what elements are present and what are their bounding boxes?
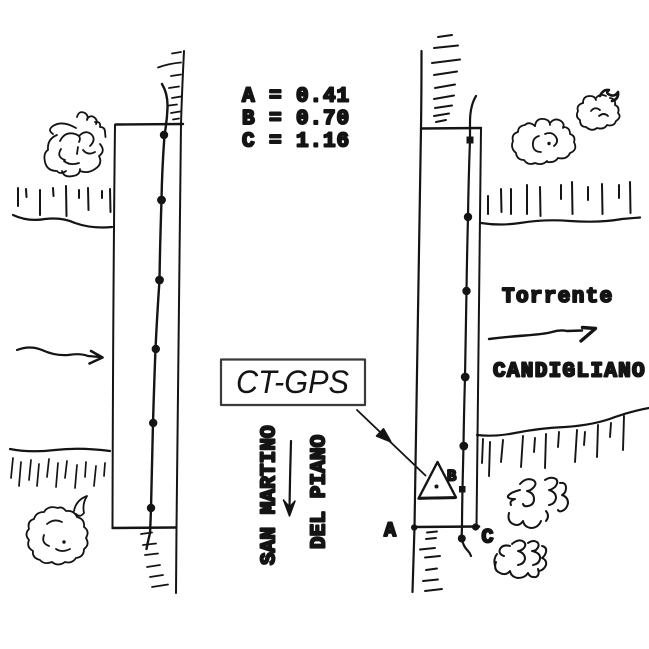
svg-text:A = 0.41: A = 0.41 xyxy=(242,86,350,109)
svg-text:B = 0.70: B = 0.70 xyxy=(242,108,350,131)
svg-text:C: C xyxy=(482,527,494,550)
svg-text:SAN MARTINO: SAN MARTINO xyxy=(259,425,282,565)
svg-text:CANDIGLIANO: CANDIGLIANO xyxy=(493,361,646,384)
svg-text:B: B xyxy=(447,468,456,486)
svg-text:C = 1.16: C = 1.16 xyxy=(242,131,350,154)
svg-text:CT-GPS: CT-GPS xyxy=(236,364,349,400)
svg-text:DEL PIANO: DEL PIANO xyxy=(309,435,332,549)
svg-text:A: A xyxy=(384,520,396,543)
svg-text:Torrente: Torrente xyxy=(502,286,614,309)
